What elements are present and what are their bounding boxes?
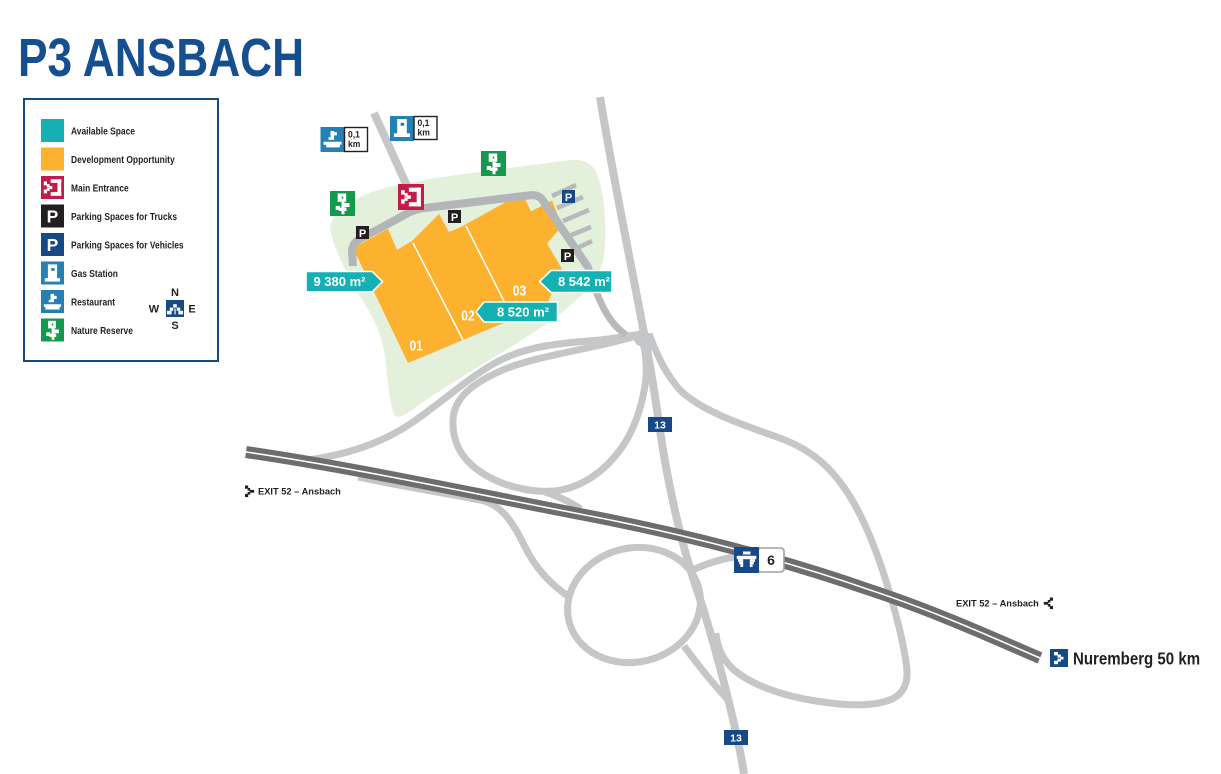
- svg-text:Development Opportunity: Development Opportunity: [71, 154, 175, 165]
- svg-text:EXIT 52 – Ansbach: EXIT 52 – Ansbach: [258, 487, 341, 497]
- svg-text:Parking Spaces for Vehicles: Parking Spaces for Vehicles: [71, 240, 184, 251]
- svg-text:P3 ANSBACH: P3 ANSBACH: [18, 28, 304, 88]
- svg-text:km: km: [418, 127, 430, 138]
- svg-text:P: P: [47, 235, 59, 255]
- svg-text:03: 03: [513, 282, 527, 299]
- svg-text:Available Space: Available Space: [71, 126, 135, 137]
- svg-text:P: P: [451, 212, 458, 224]
- svg-text:P: P: [359, 228, 366, 240]
- svg-text:8 542 m²: 8 542 m²: [558, 274, 611, 289]
- svg-text:13: 13: [730, 733, 742, 745]
- svg-text:Parking Spaces for Trucks: Parking Spaces for Trucks: [71, 211, 177, 222]
- svg-text:Gas Station: Gas Station: [71, 268, 118, 279]
- svg-text:9 380 m²: 9 380 m²: [313, 274, 366, 289]
- svg-text:S: S: [171, 320, 178, 332]
- svg-text:P: P: [564, 251, 571, 263]
- svg-text:Restaurant: Restaurant: [71, 297, 115, 308]
- svg-text:Nuremberg 50 km: Nuremberg 50 km: [1073, 649, 1200, 668]
- svg-text:P: P: [47, 207, 59, 227]
- svg-text:km: km: [348, 139, 360, 150]
- svg-text:P: P: [565, 192, 572, 204]
- svg-text:N: N: [171, 287, 179, 299]
- svg-text:E: E: [188, 304, 195, 316]
- svg-text:02: 02: [461, 307, 475, 324]
- svg-text:Nature Reserve: Nature Reserve: [71, 325, 133, 336]
- svg-text:6: 6: [767, 552, 775, 568]
- svg-text:EXIT 52 – Ansbach: EXIT 52 – Ansbach: [956, 599, 1039, 609]
- svg-text:01: 01: [410, 337, 424, 354]
- svg-text:8 520 m²: 8 520 m²: [497, 305, 550, 320]
- svg-text:13: 13: [654, 420, 666, 432]
- svg-text:W: W: [149, 304, 160, 316]
- svg-text:Main Entrance: Main Entrance: [71, 183, 129, 194]
